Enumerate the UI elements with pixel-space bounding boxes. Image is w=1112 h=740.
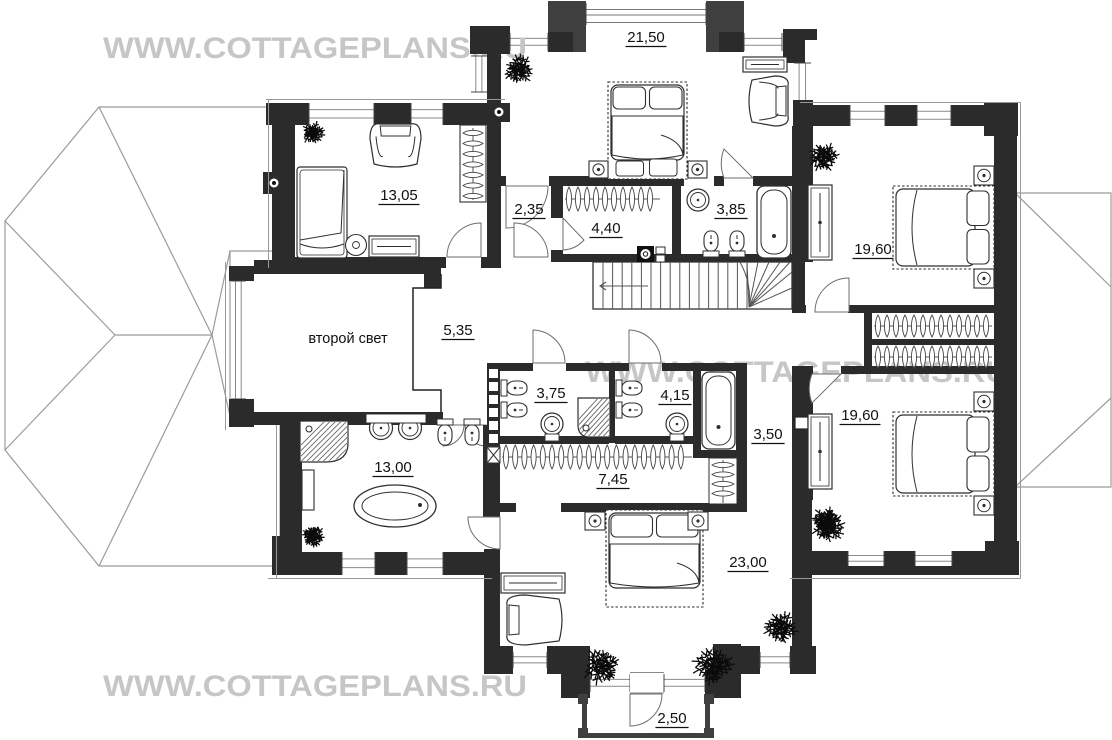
svg-text:3,75: 3,75 <box>536 385 565 402</box>
svg-text:13,00: 13,00 <box>374 459 412 476</box>
svg-text:2,50: 2,50 <box>657 710 686 727</box>
svg-text:23,00: 23,00 <box>729 554 767 571</box>
svg-text:19,60: 19,60 <box>841 407 879 424</box>
svg-text:2,35: 2,35 <box>514 201 543 218</box>
svg-text:3,85: 3,85 <box>716 201 745 218</box>
svg-text:13,05: 13,05 <box>380 187 418 204</box>
svg-text:3,50: 3,50 <box>753 426 782 443</box>
svg-text:5,35: 5,35 <box>443 322 472 339</box>
svg-text:4,15: 4,15 <box>660 387 689 404</box>
svg-text:WWW.COTTAGEPLANS.RU: WWW.COTTAGEPLANS.RU <box>103 32 527 65</box>
svg-text:4,40: 4,40 <box>591 220 620 237</box>
svg-text:второй свет: второй свет <box>308 331 388 347</box>
svg-text:WWW.COTTAGEPLANS.RU: WWW.COTTAGEPLANS.RU <box>103 670 527 703</box>
svg-text:7,45: 7,45 <box>598 471 627 488</box>
svg-text:21,50: 21,50 <box>627 29 665 46</box>
svg-text:19,60: 19,60 <box>854 241 892 258</box>
